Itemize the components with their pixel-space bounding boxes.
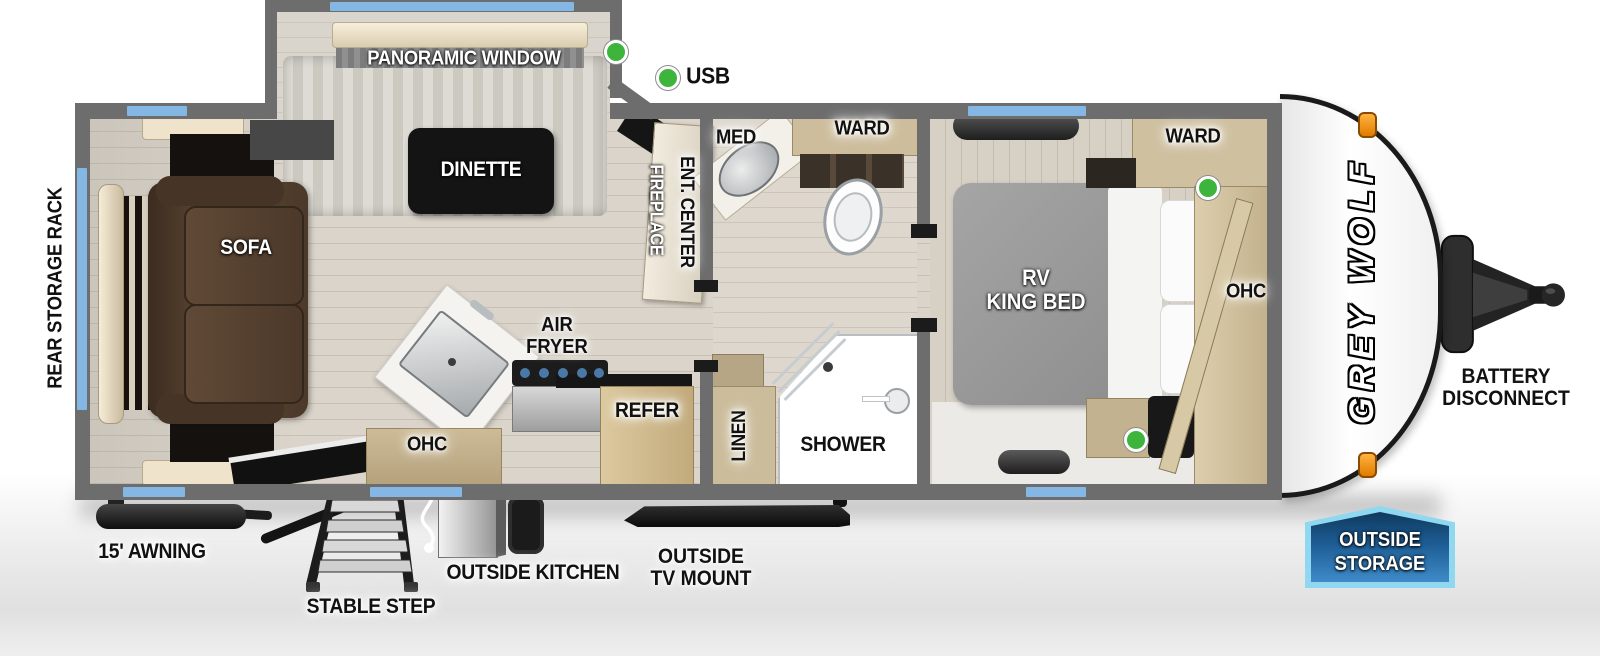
awning-label: 15' AWNING	[98, 540, 205, 564]
awning-roll	[96, 504, 246, 529]
med-label: MED	[716, 127, 756, 150]
dinette-label: DINETTE	[441, 158, 522, 182]
stove-body	[512, 386, 610, 432]
rear-storage-rack-rail	[98, 184, 124, 424]
king-bed-sheet-fold	[1108, 187, 1162, 401]
outside-kitchen-griddle	[438, 492, 498, 558]
slideout-window	[330, 2, 574, 11]
step-tread-2	[326, 520, 404, 532]
brand-logo: GREY WOLF	[1340, 110, 1384, 470]
outside-tv-mount-label: OUTSIDE TV MOUNT	[651, 546, 752, 590]
bedroom-valance-bottom	[998, 450, 1070, 474]
rear-storage-rack-label: REAR STORAGE RACK	[45, 187, 68, 388]
bedroom-ohc-label: OHC	[1226, 281, 1266, 304]
air-fryer-label: AIR FRYER	[526, 314, 588, 358]
bath-ward-label: WARD	[834, 118, 889, 141]
bedroom-door-jamb-2	[911, 318, 937, 332]
sink-drain	[448, 358, 456, 366]
window-bottom-entry	[370, 487, 462, 497]
window-top-rear	[127, 106, 187, 116]
window-bottom-bedroom	[1026, 487, 1086, 497]
bottom-wall	[75, 484, 1282, 500]
hitch	[1436, 232, 1566, 358]
linen-step	[712, 354, 764, 390]
wardrobe-under-shelf	[1086, 158, 1136, 188]
bath-door-jamb-1	[694, 280, 718, 292]
usb-legend-label: USB	[686, 63, 730, 90]
shower-label: SHOWER	[800, 433, 885, 457]
step-tread-4	[318, 560, 412, 572]
stable-step-label: STABLE STEP	[307, 595, 436, 619]
shower-drain	[823, 362, 833, 372]
window-rear-wall	[77, 168, 87, 410]
refer-label: REFER	[615, 399, 679, 423]
step-tread-3	[322, 540, 408, 552]
linen-label: LINEN	[729, 410, 751, 461]
bedroom-ward-label: WARD	[1165, 126, 1220, 149]
window-top-bedroom	[968, 106, 1086, 116]
usb-indicator-nightstand	[1124, 428, 1148, 452]
shower-wand	[862, 396, 890, 402]
slideout-left-wall	[265, 0, 277, 118]
top-wall-front	[610, 103, 1282, 119]
outside-kitchen-label: OUTSIDE KITCHEN	[447, 561, 620, 585]
dinette-valance	[332, 22, 588, 48]
kitchen-ohc-label: OHC	[407, 434, 447, 457]
outside-storage-label: OUTSIDE STORAGE	[1335, 528, 1426, 576]
sofa-cushion-bottom	[184, 304, 304, 404]
rv-floorplan-scene: PANORAMIC WINDOW DINETTE USB SOFA REAR S…	[0, 0, 1600, 656]
sofa-label: SOFA	[220, 236, 272, 260]
usb-legend-dot	[656, 66, 680, 90]
panoramic-window-label: PANORAMIC WINDOW	[367, 48, 561, 71]
king-bed-label: RV KING BED	[987, 266, 1086, 314]
ent-center-label: ENT. CENTER	[675, 156, 697, 268]
stove-burner-2	[539, 368, 549, 378]
hitch-ball	[1542, 283, 1565, 306]
stove-burner-1	[520, 368, 530, 378]
fireplace-label: FIREPLACE	[646, 164, 667, 255]
outside-kitchen-griddle-side	[496, 495, 506, 557]
step-tread-1	[330, 500, 400, 512]
stove-burner-5	[594, 368, 604, 378]
tv-mount-bar	[624, 505, 850, 527]
outside-kitchen-appliance	[508, 496, 544, 554]
overhead-cabinet-living	[250, 120, 334, 160]
battery-disconnect-label: BATTERY DISCONNECT	[1442, 366, 1570, 410]
bedroom-door-jamb-1	[911, 224, 937, 238]
bath-wall-right-upper	[917, 118, 930, 230]
sofa-arm-top	[156, 176, 284, 206]
battery-box	[1442, 236, 1473, 352]
stove-burner-4	[577, 368, 587, 378]
window-bottom-rear	[123, 487, 185, 497]
bath-door-jamb-2	[694, 360, 718, 372]
bath-wall-right-lower	[917, 332, 930, 484]
end-table-bottom	[142, 460, 244, 486]
bedroom-front-wall	[1267, 118, 1282, 484]
bath-wall-left-lower	[700, 366, 713, 484]
bath-wall-left-upper	[700, 118, 713, 288]
stove-burner-3	[558, 368, 568, 378]
usb-indicator-slideout	[604, 40, 628, 64]
usb-indicator-bedroom-ward	[1196, 176, 1220, 200]
